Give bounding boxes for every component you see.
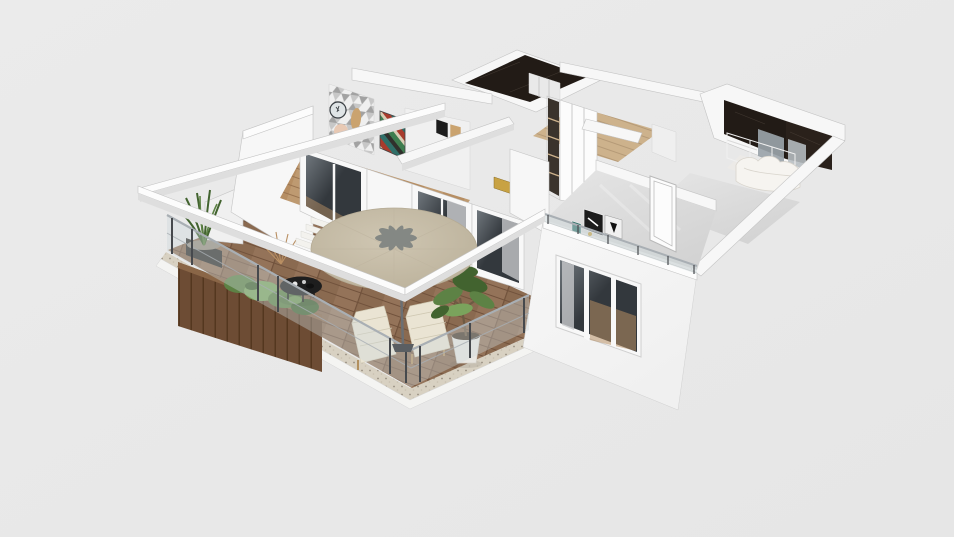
umbrella-base [392, 344, 414, 352]
open-shelf-unit [548, 98, 559, 196]
render-canvas[interactable] [0, 0, 954, 537]
table-kettle [306, 284, 314, 289]
floor-plan-3d-viewport[interactable] [0, 0, 954, 537]
window-curtain-reflection [562, 261, 574, 330]
